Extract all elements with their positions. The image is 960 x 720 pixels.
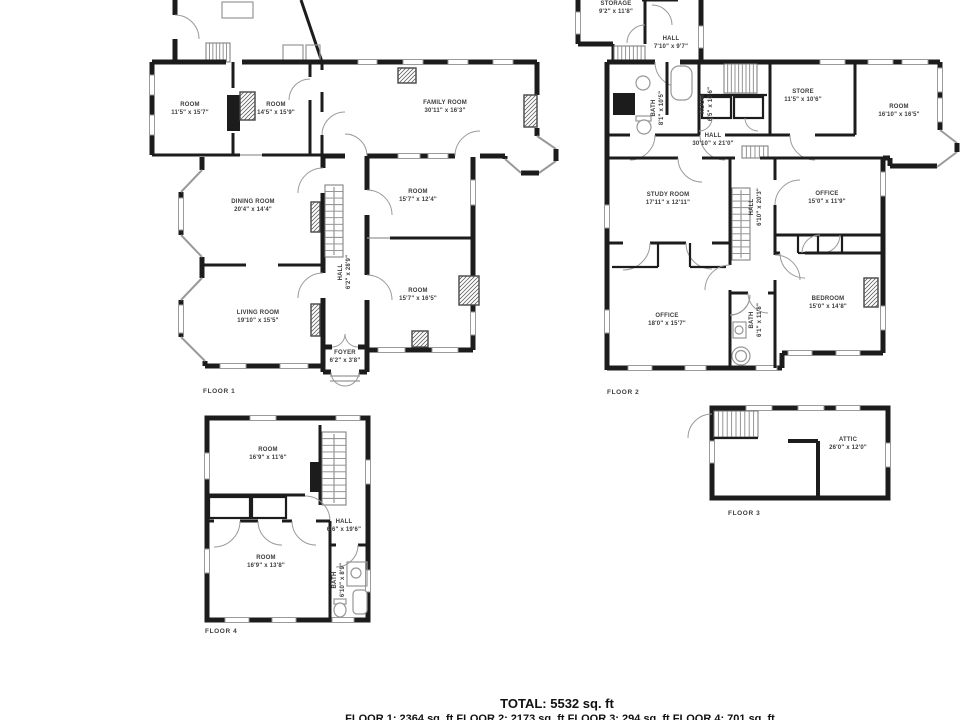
floor-2-plan bbox=[576, 0, 958, 371]
floor-1-plan bbox=[150, 0, 557, 386]
steps-hall-f2 bbox=[742, 146, 768, 158]
floorplan-canvas bbox=[0, 0, 960, 720]
stairs-f3 bbox=[714, 411, 758, 437]
floor-3-plan bbox=[688, 406, 891, 499]
floor-4-plan bbox=[205, 416, 371, 623]
stairs-top-room bbox=[206, 43, 230, 62]
total-area-text: TOTAL: 5532 sq. ft bbox=[500, 696, 614, 711]
floorplan-page: ROOM11'5" x 15'7"ROOM14'5" x 15'9"FAMILY… bbox=[0, 0, 960, 720]
tub-icon bbox=[732, 347, 750, 365]
stairs-upper-f2 bbox=[724, 64, 757, 93]
bathtub-icon bbox=[671, 66, 692, 100]
tub-icon-f4 bbox=[353, 590, 367, 614]
floor-areas-text: FLOOR 1: 2364 sq. ft FLOOR 2: 2173 sq. f… bbox=[345, 713, 775, 720]
